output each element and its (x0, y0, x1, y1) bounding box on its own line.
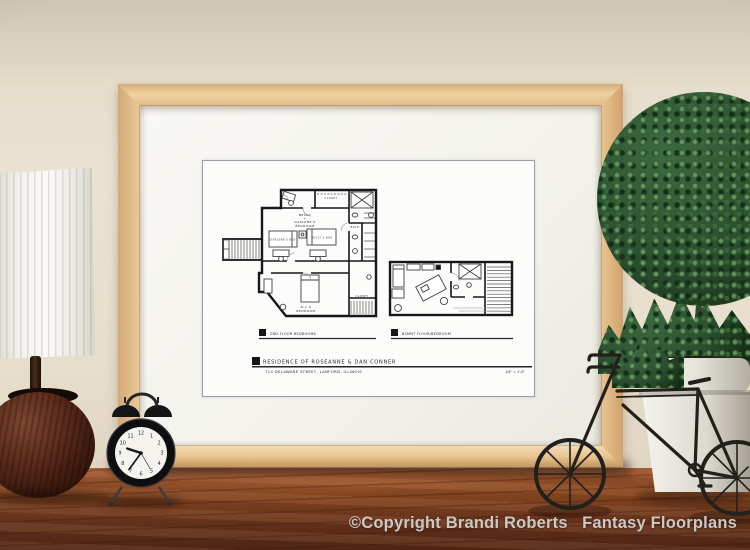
bike-seat (690, 379, 709, 383)
title-line1: RESIDENCE OF ROSEANNE & DAN CONNER (263, 360, 396, 366)
svg-text:3: 3 (160, 451, 163, 457)
title-block: RESIDENCE OF ROSEANNE & DAN CONNER 714 D… (252, 357, 532, 374)
svg-text:6: 6 (139, 471, 142, 477)
copyright-watermark: ©Copyright Brandi Roberts Fantasy Floorp… (349, 514, 737, 533)
svg-text:12: 12 (138, 431, 144, 437)
clock-bell-left (112, 405, 140, 417)
caption-left-plan: 2ND FLOOR BEDROOMS (270, 332, 316, 336)
svg-text:11: 11 (127, 433, 133, 439)
lamp-shade (0, 168, 95, 359)
svg-text:10: 10 (120, 441, 126, 447)
svg-text:5: 5 (150, 469, 153, 475)
svg-text:1: 1 (150, 433, 153, 439)
bicycle-figurine (505, 325, 750, 540)
alarm-clock: 12 1 2 3 4 5 6 7 8 9 10 11 (95, 390, 187, 510)
svg-text:8: 8 (121, 461, 124, 467)
floorplan-drawing: BECKY + DARLENE'S BEDROOM DARLENE'S BED … (203, 161, 534, 396)
bed-label-becky: BECKY'S BED (311, 237, 332, 240)
photo-scene: BECKY + DARLENE'S BEDROOM DARLENE'S BED … (0, 0, 750, 550)
closet-label-bottom: CLOSET (356, 294, 369, 298)
svg-text:2: 2 (158, 441, 161, 447)
second-floor-plan: BECKY + DARLENE'S BEDROOM DARLENE'S BED … (223, 190, 376, 316)
bike-frame (570, 355, 737, 486)
title-line2: 714 DELAWARE STREET, LANFORD, ILLINOIS (265, 370, 362, 374)
bed-label-darlene: DARLENE'S BED (270, 239, 296, 242)
svg-text:4: 4 (158, 461, 161, 467)
bath-label: BATH (351, 225, 360, 229)
clock-bell-right (144, 405, 172, 417)
plan-captions: 2ND FLOOR BEDROOMS BSMNT FLOOR/BEDROOM (259, 329, 513, 339)
svg-text:BEDROOM: BEDROOM (296, 309, 315, 313)
basement-floor-plan (390, 262, 512, 315)
closet-label-top: CLOSET (325, 196, 338, 200)
svg-text:9: 9 (118, 451, 121, 457)
clock-handle (127, 394, 157, 407)
caption-right-plan: BSMNT FLOOR/BEDROOM (402, 332, 451, 336)
frame-rail-top (118, 84, 623, 106)
clock-leg-left (111, 487, 122, 503)
floorplan-print: BECKY + DARLENE'S BEDROOM DARLENE'S BED … (202, 160, 535, 397)
clock-leg-right (159, 487, 170, 503)
svg-text:BEDROOM: BEDROOM (295, 224, 314, 228)
